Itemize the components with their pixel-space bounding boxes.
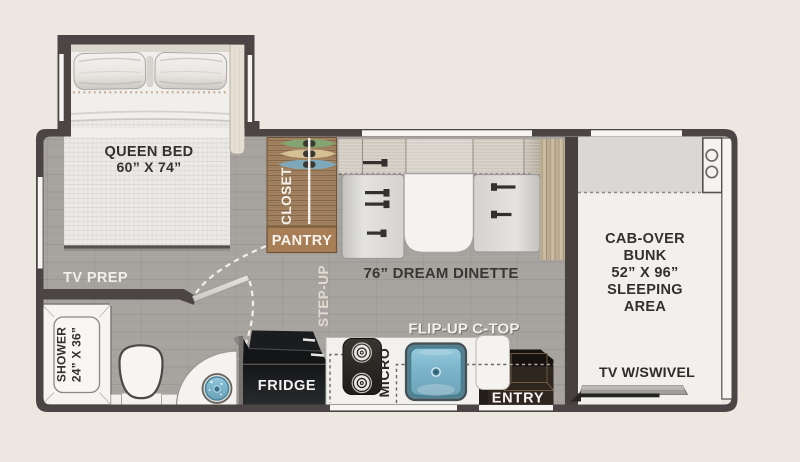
- svg-text:SHOWER: SHOWER: [55, 327, 69, 382]
- svg-text:QUEEN BED: QUEEN BED: [105, 144, 194, 160]
- svg-text:60” X 74”: 60” X 74”: [117, 159, 182, 175]
- svg-text:TV PREP: TV PREP: [63, 270, 128, 286]
- svg-text:PANTRY: PANTRY: [272, 233, 332, 249]
- svg-text:24” X 36”: 24” X 36”: [70, 327, 84, 382]
- svg-text:FLIP-UP C-TOP: FLIP-UP C-TOP: [408, 321, 519, 338]
- svg-text:BUNK: BUNK: [623, 248, 666, 264]
- svg-text:ENTRY: ENTRY: [492, 391, 545, 407]
- svg-text:52” X 96”: 52” X 96”: [611, 265, 678, 281]
- svg-text:MICRO: MICRO: [376, 348, 392, 398]
- svg-text:FRIDGE: FRIDGE: [258, 378, 316, 394]
- svg-text:AREA: AREA: [624, 299, 667, 315]
- svg-text:SLEEPING: SLEEPING: [607, 282, 683, 298]
- svg-text:CAB-OVER: CAB-OVER: [605, 231, 685, 247]
- svg-text:STEP-UP: STEP-UP: [316, 265, 331, 327]
- svg-text:76” DREAM DINETTE: 76” DREAM DINETTE: [363, 265, 518, 282]
- svg-text:TV W/SWIVEL: TV W/SWIVEL: [599, 365, 695, 381]
- svg-text:CLOSET: CLOSET: [279, 167, 294, 225]
